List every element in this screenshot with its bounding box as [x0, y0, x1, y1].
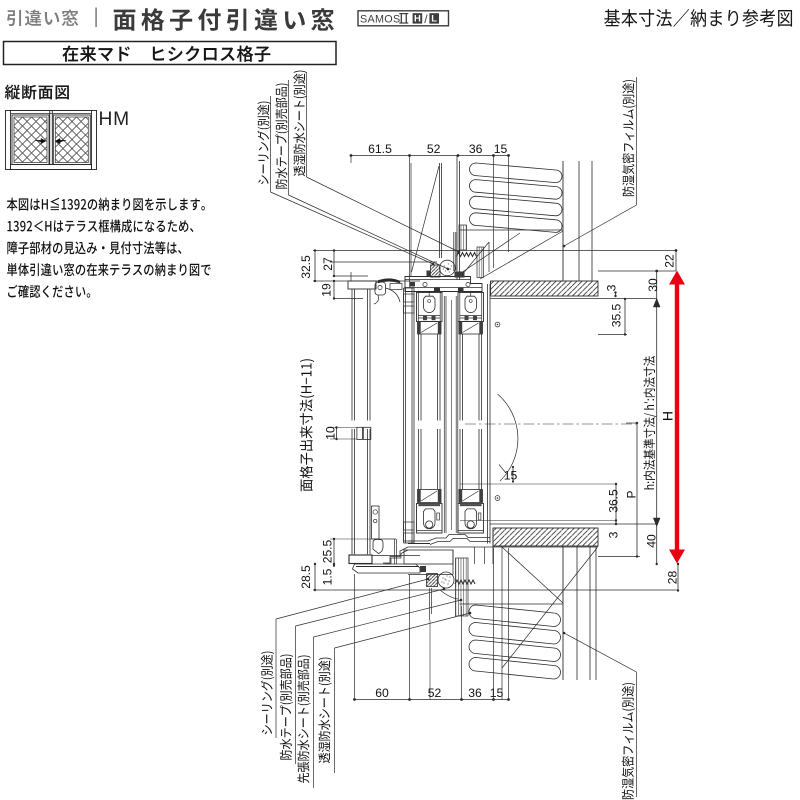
svg-text:36: 36 — [469, 142, 483, 156]
svg-text:15: 15 — [494, 142, 508, 156]
svg-text:19: 19 — [319, 283, 333, 297]
svg-text:1.5: 1.5 — [320, 568, 334, 585]
svg-text:28: 28 — [665, 571, 679, 585]
svg-text:SAMOS: SAMOS — [360, 13, 401, 25]
svg-text:32.5: 32.5 — [299, 255, 313, 279]
svg-text:25.5: 25.5 — [320, 539, 334, 563]
svg-text:P: P — [624, 490, 638, 498]
svg-text:28.5: 28.5 — [299, 565, 313, 589]
svg-text:H: H — [659, 411, 675, 421]
svg-text:60: 60 — [375, 686, 389, 700]
svg-text:22: 22 — [662, 254, 676, 268]
svg-text:30: 30 — [646, 278, 660, 292]
svg-text:27: 27 — [321, 257, 335, 271]
svg-text:3: 3 — [606, 531, 620, 538]
svg-text:40: 40 — [644, 534, 658, 548]
svg-text:52: 52 — [427, 142, 441, 156]
svg-text:10: 10 — [323, 426, 337, 440]
svg-text:36.5: 36.5 — [606, 489, 620, 513]
svg-text:3: 3 — [604, 284, 618, 291]
svg-text:36: 36 — [468, 686, 482, 700]
svg-text:HM: HM — [99, 109, 130, 130]
svg-text:H: H — [414, 14, 421, 25]
svg-text:61.5: 61.5 — [368, 142, 392, 156]
svg-text:L: L — [431, 14, 437, 25]
svg-text:15: 15 — [504, 469, 518, 483]
svg-text:15: 15 — [490, 686, 504, 700]
svg-text:35.5: 35.5 — [609, 303, 623, 327]
